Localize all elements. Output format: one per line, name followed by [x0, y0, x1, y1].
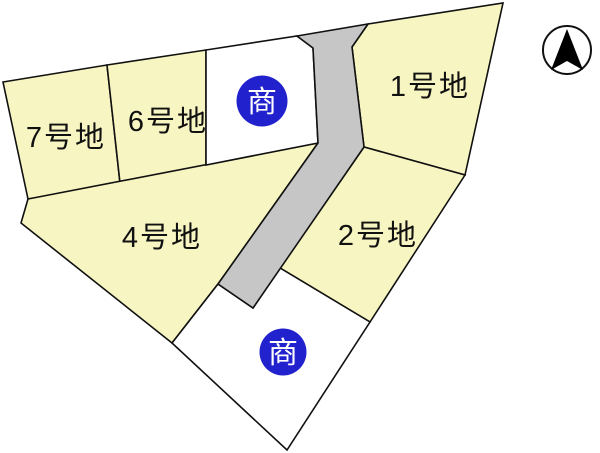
commercial-badge-top-label: 商	[247, 86, 277, 119]
lot-map-svg: 7号地 6号地 1号地 4号地 2号地 商 商	[0, 0, 600, 453]
commercial-badge-bottom: 商	[260, 329, 307, 376]
lot-2-label: 2号地	[338, 219, 418, 252]
lot-7-label: 7号地	[26, 121, 106, 154]
lot-6-label: 6号地	[128, 105, 208, 138]
commercial-badge-bottom-label: 商	[268, 337, 298, 370]
lot-4-label: 4号地	[122, 221, 202, 254]
north-compass-icon	[543, 26, 591, 74]
commercial-badge-top: 商	[237, 76, 288, 127]
lot-map: 7号地 6号地 1号地 4号地 2号地 商 商	[0, 0, 600, 453]
lot-1-label: 1号地	[390, 70, 470, 103]
